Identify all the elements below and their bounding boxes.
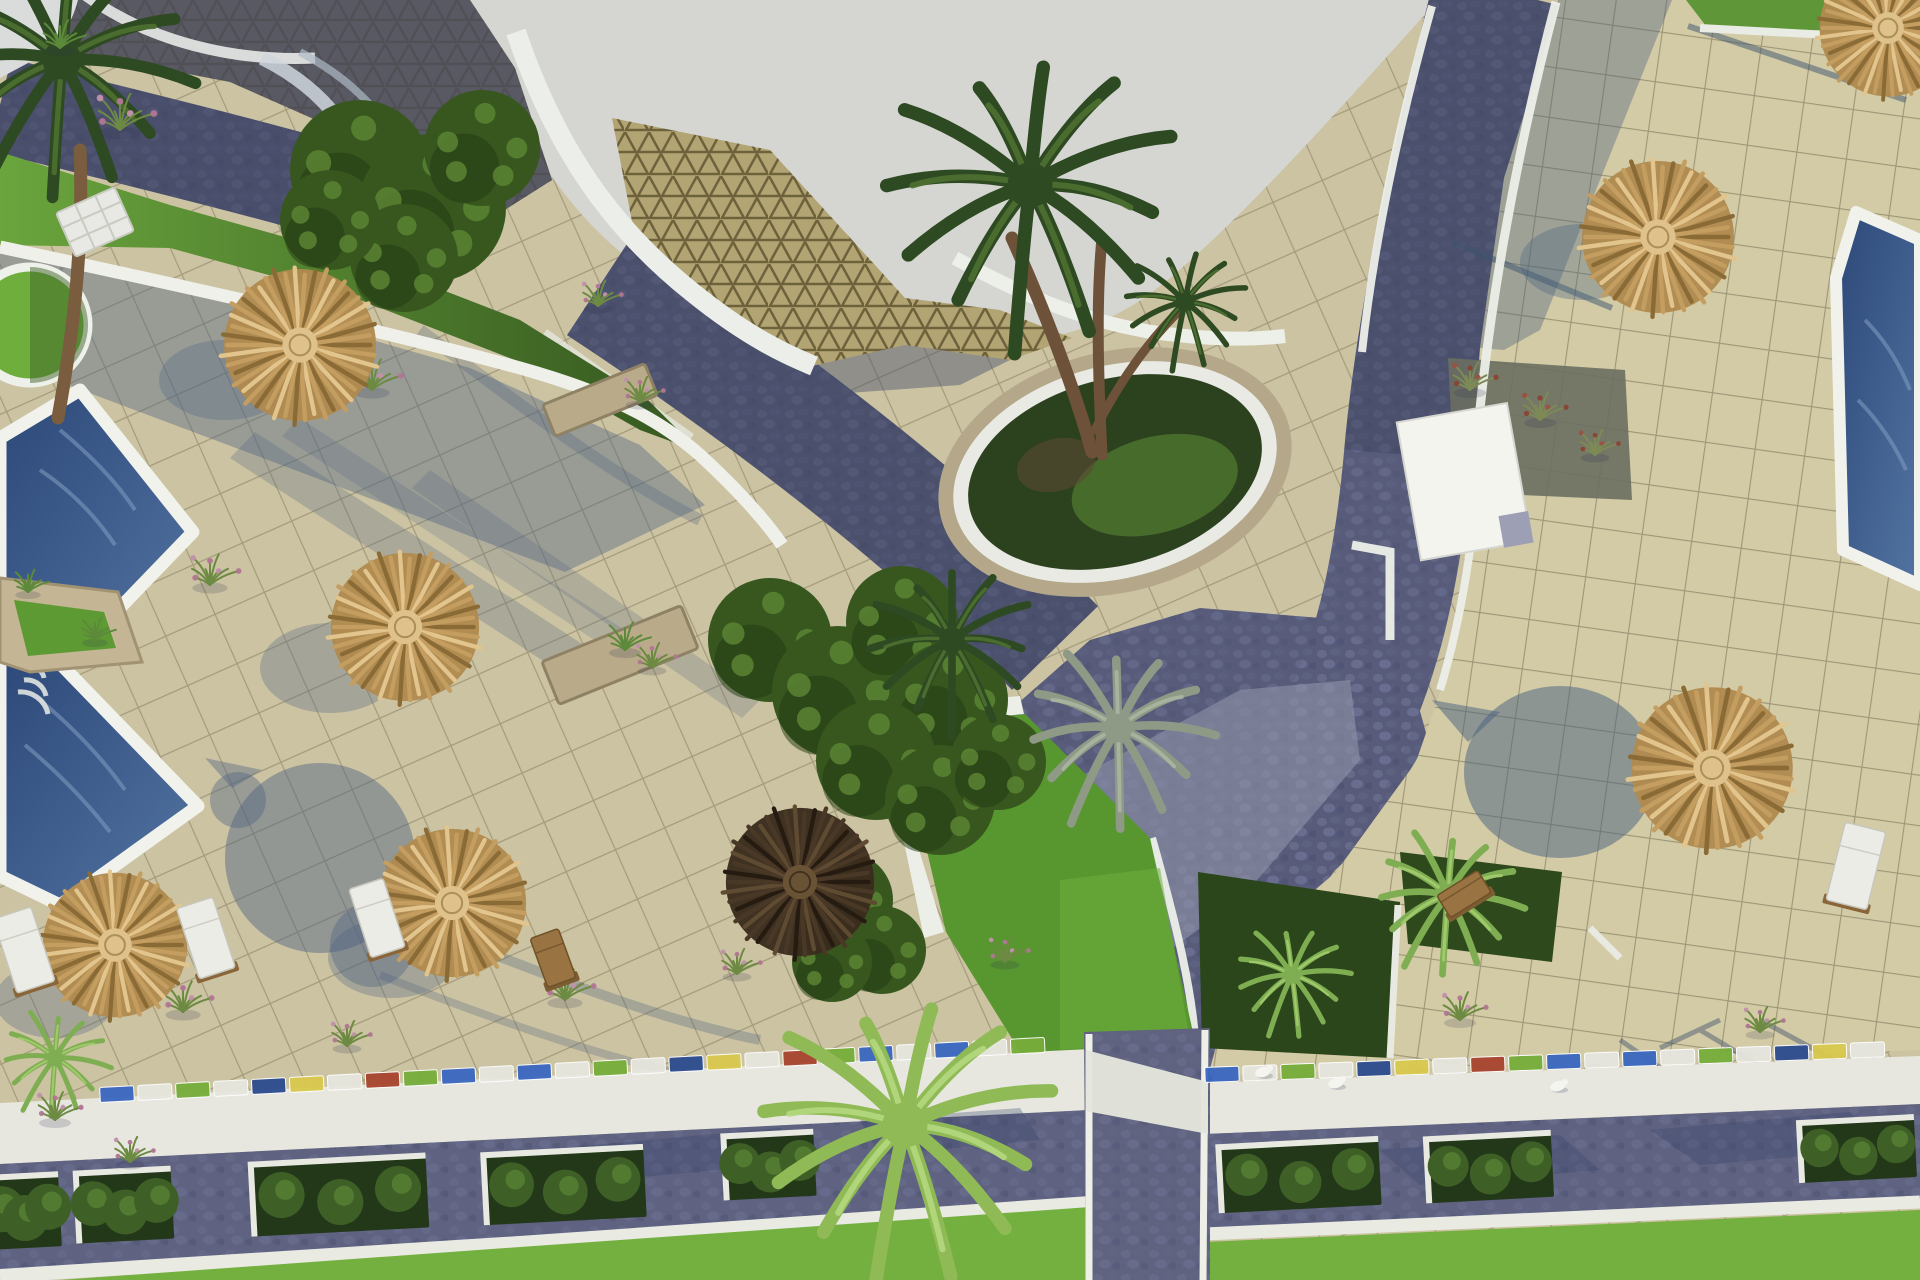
mosaic-tile: [365, 1072, 400, 1089]
planter-box: [483, 1147, 646, 1225]
mosaic-tile: [1736, 1046, 1771, 1062]
mosaic-tile: [555, 1062, 590, 1079]
mosaic-tile: [1205, 1066, 1240, 1082]
resort-aerial-render: [0, 0, 1920, 1280]
bush: [950, 714, 1046, 810]
mosaic-tile: [745, 1051, 780, 1068]
planter-box: [1426, 1133, 1554, 1203]
mosaic-tile: [100, 1086, 135, 1103]
mosaic-tile: [1698, 1048, 1733, 1064]
mosaic-tile: [1319, 1062, 1354, 1078]
mosaic-tile: [213, 1080, 248, 1097]
mosaic-tile: [593, 1060, 628, 1077]
mosaic-tile: [1281, 1063, 1316, 1079]
kiosk-notch: [1498, 511, 1533, 548]
mosaic-tile: [1584, 1052, 1619, 1068]
mosaic-tile: [251, 1078, 286, 1095]
mosaic-tile: [1660, 1049, 1695, 1065]
mosaic-tile: [441, 1068, 476, 1085]
mosaic-tile: [1622, 1050, 1657, 1066]
mosaic-tile: [403, 1070, 438, 1087]
mosaic-tile: [289, 1076, 324, 1093]
mosaic-tile: [1774, 1045, 1809, 1061]
mosaic-tile: [1433, 1058, 1468, 1074]
planter-box: [1218, 1139, 1381, 1213]
mosaic-tile: [707, 1053, 742, 1070]
mosaic-tile: [669, 1056, 704, 1073]
mosaic-tile: [138, 1084, 173, 1101]
mosaic-tile: [1471, 1056, 1506, 1072]
mosaic-tile: [1850, 1042, 1885, 1058]
mosaic-tile: [517, 1064, 552, 1081]
mosaic-tile: [327, 1074, 362, 1091]
mosaic-tile: [631, 1058, 666, 1075]
mosaic-tile: [1395, 1059, 1430, 1075]
bottom-path: [1084, 1028, 1210, 1280]
mosaic-tile: [1509, 1055, 1544, 1071]
screenshot-stage: [0, 0, 1920, 1280]
planter-box: [69, 1168, 181, 1244]
mosaic-tile: [479, 1066, 514, 1083]
bush: [424, 90, 540, 206]
mosaic-tile: [1546, 1053, 1581, 1069]
pool-right: [1836, 212, 1920, 585]
planter-box: [1799, 1117, 1917, 1183]
mosaic-tile: [1010, 1037, 1045, 1054]
mosaic-tile: [1812, 1043, 1847, 1059]
bush: [280, 170, 380, 270]
planter-box: [251, 1155, 430, 1236]
mosaic-tile: [1357, 1060, 1392, 1076]
mosaic-tile: [175, 1082, 210, 1099]
